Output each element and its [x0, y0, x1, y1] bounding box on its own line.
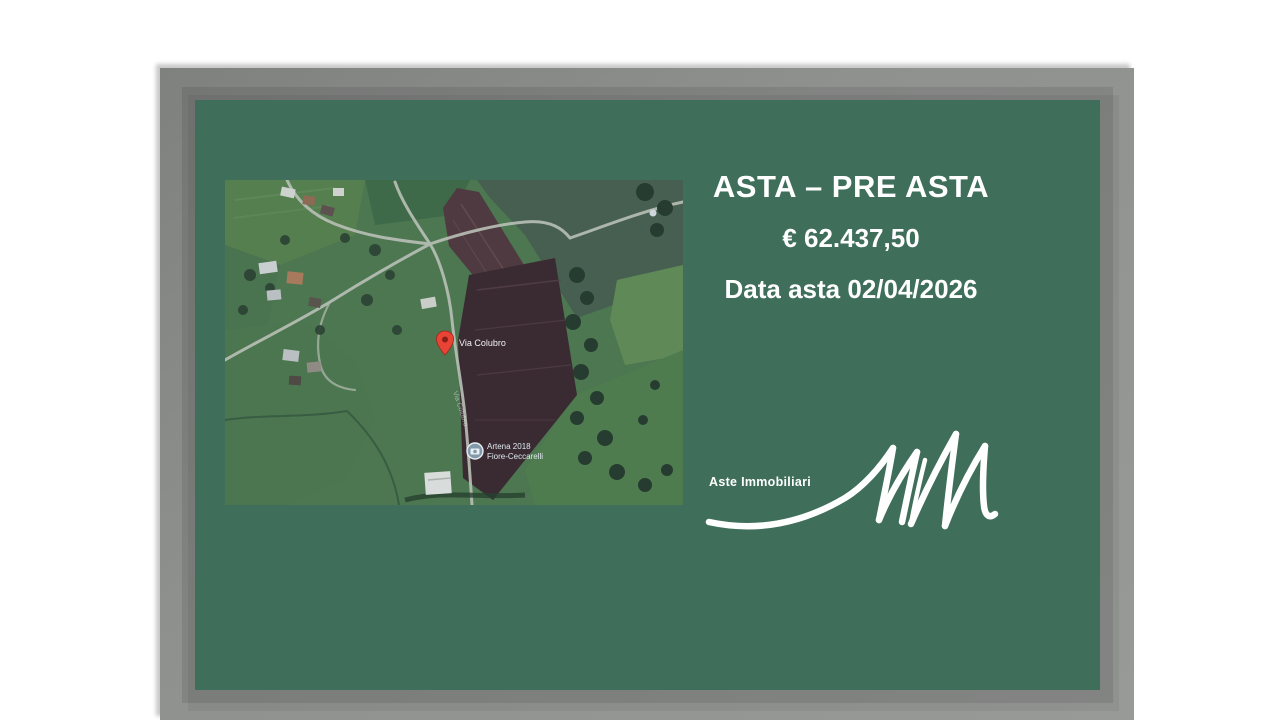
page: { "slide": { "title": "ASTA – PRE ASTA",… — [0, 0, 1280, 720]
auction-price: € 62.437,50 — [693, 223, 1009, 253]
photo-label-line2: Fiore-Ceccarelli — [487, 452, 543, 461]
photo-label-line1: Artena 2018 — [487, 442, 531, 451]
satellite-map-image: Via Colubro Via Colubro Artena 2018 Fior… — [225, 180, 683, 505]
auction-text-block: ASTA – PRE ASTA € 62.437,50 Data asta 02… — [693, 168, 1009, 304]
slide-title: ASTA – PRE ASTA — [693, 168, 1009, 206]
auction-date: Data asta 02/04/2026 — [693, 274, 1009, 304]
map-marker-label: Via Colubro — [459, 338, 506, 348]
slide-canvas: Via Colubro Via Colubro Artena 2018 Fior… — [195, 100, 1100, 690]
brand-logo: Aste Immobiliari — [703, 418, 1005, 536]
satellite-map-graphic: Via Colubro Via Colubro Artena 2018 Fior… — [225, 180, 683, 505]
photo-attribution-icon — [467, 443, 483, 459]
slide-frame: Via Colubro Via Colubro Artena 2018 Fior… — [160, 68, 1134, 720]
brand-name: Aste Immobiliari — [709, 475, 811, 489]
